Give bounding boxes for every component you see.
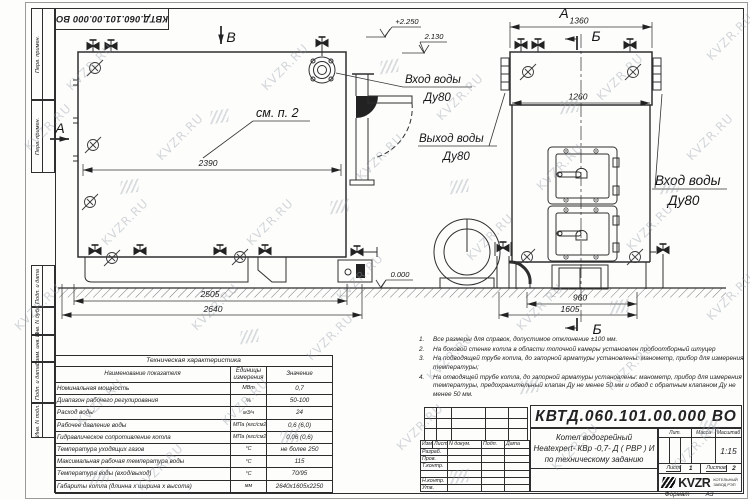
drain-valve-icon [89,245,101,255]
water-inlet-flange [309,57,335,83]
title-block: Изм. Лист N докум. Подп. Дата Разраб. Пр… [420,405,742,492]
flue-duct [350,74,412,185]
drawing-title-line: Heatexpert- КВр -0,7- Д ( РВР ) И [531,444,657,455]
kvzr-logo-icon [661,477,676,488]
spec-table-title: Техническая характеристика [55,356,333,367]
dim-960: 960 [573,293,587,303]
signature-row: Разраб. [421,449,529,456]
position-mark-icon [520,64,536,80]
dim-1605: 1605 [561,304,580,314]
elev-2130: 2.130 [424,32,445,41]
position-mark-icon [82,194,98,210]
side-view [73,37,412,282]
sheets-cell: Листов2 [701,464,741,474]
section-label-b-bottom: Б [592,321,601,337]
title-block-right: Лит. Масса Масштаб 1:15 Лист1 Листов2 KV… [658,428,742,492]
table-row: Диапазон рабочего регулирования%50-100 [55,395,333,407]
scale-label: Масштаб [716,429,741,438]
view-label-b: В [226,29,235,45]
signature-grid: Изм. Лист N докум. Подп. Дата Разраб. Пр… [420,440,530,492]
valve-icon [657,244,669,254]
signature-row: Н.контр. [421,478,529,485]
side-flange-icon [653,58,661,90]
company-logo: KVZR КОТЕЛЬНЫЙ ЗАВОД РЭП [659,474,741,491]
drain-valve-icon [134,245,146,255]
kvzr-logo-subtext: КОТЕЛЬНЫЙ ЗАВОД РЭП [713,478,737,487]
valve-icon [351,246,363,256]
table-row: Габариты котла (длинна х ширина х высота… [55,480,333,492]
position-mark-icon [232,249,248,265]
lit-label: Лит. [659,429,692,438]
ground-line [58,288,726,298]
spec-col-header: Единицы измерения [231,367,267,383]
sheet-cell: Лист1 [659,464,701,474]
see-note-callout: см. п. 2 [256,106,299,120]
water-outlet-label: Выход воды [419,133,484,145]
section-label-b-top: Б [591,28,600,44]
furnace-door [548,147,619,204]
view-labels: В А А Б Б [54,5,601,337]
position-mark-icon [87,60,103,76]
signature-row: Т.контр. [421,463,529,470]
water-inlet-label-right: Вход воды [655,173,721,188]
ash-door [548,206,619,261]
drawing-title: Котел водогрейный Heatexpert- КВр -0,7- … [530,428,658,492]
note-item: 2.На боковой стенке котла в области топо… [419,346,747,355]
spec-col-header: Наименование показателя [55,367,231,383]
revision-grid [424,407,528,441]
note-item: 3.На подводящей трубе котла, до запорной… [419,355,747,372]
dim-1360: 1360 [570,16,589,26]
dim-2505: 2505 [200,289,220,299]
elev-2250: +2.250 [395,17,419,26]
drawing-title-line: по техническому заданию [531,455,657,466]
spec-table: Техническая характеристика Наименование … [54,355,333,493]
callout-leaders [203,73,727,189]
table-row: Расход водым3/ч24 [55,407,333,419]
drain-valve-icon [259,245,271,255]
scale-value: 1:15 [716,438,741,464]
dim-2640: 2640 [203,304,223,314]
mass-label: Масса [692,429,716,438]
elev-0000: 0.000 [391,270,411,279]
view-label-a-front: А [558,5,568,21]
table-row: Номинальная мощностьМВт0,7 [55,383,333,395]
note-item: 1.Все размеры для справок, допустимое от… [419,336,747,345]
water-inlet-dn-right: Ду80 [666,193,700,208]
dim-1260: 1260 [569,92,588,102]
kvzr-logo-text: KVZR [678,476,710,490]
position-mark-icon [85,137,101,153]
front-view [501,34,669,322]
doc-number: КВТД.060.101.00.000 ВО [530,405,742,428]
table-row: Максимальная рабочая температура воды°С1… [55,456,333,468]
spec-col-header: Значение [267,367,333,383]
notes-list: 1.Все размеры для справок, допустимое от… [419,336,747,400]
signature-header-row: Изм. Лист N докум. Подп. Дата [421,441,529,449]
note-item: 4.На отводящей трубе котла, до запорной … [419,374,747,400]
water-inlet-label: Вход воды [405,74,461,86]
table-row: Температура уходящих газов°Сне более 250 [55,443,333,455]
see-note-label: см. п. 2 [256,106,299,120]
elevation-marks [366,27,447,288]
format-label: Формат А3 [636,491,742,498]
table-row: Гидравлическое сопротивление котлаМПа (к… [55,431,333,443]
table-row: Температура воды (вход/выход)°С70/95 [55,468,333,480]
pipe-callouts-right: Вход воды Ду80 [655,173,721,208]
position-mark-icon [625,64,641,80]
table-row: Рабочее давление водыМПа (кгс/см2)0,6 (6… [55,419,333,431]
drawing-title-line: Котел водогрейный [531,433,657,444]
signature-row: Утв. [421,485,529,492]
dim-2390: 2390 [198,158,218,168]
water-outlet-dn: Ду80 [441,151,470,163]
signature-row: Пров. [421,456,529,463]
signature-row [421,471,529,478]
water-inlet-dn: Ду80 [422,92,451,104]
side-flange-icon [501,58,509,90]
drain-valve-icon [214,245,226,255]
view-label-a-side: А [54,120,64,136]
position-mark-icon [104,250,120,266]
drawing-sheet: КВТД.060.101.00.000 ВО Перв. примен. Пер… [0,0,750,500]
